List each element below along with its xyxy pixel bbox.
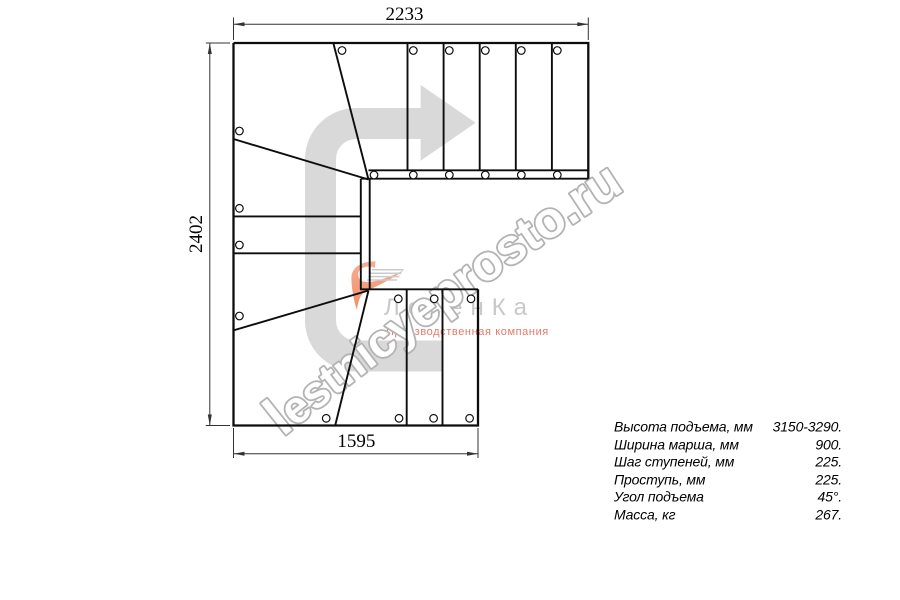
- svg-text:Шаг ступеней, мм: Шаг ступеней, мм: [614, 454, 735, 470]
- svg-text:Ширина марша, мм: Ширина марша, мм: [614, 436, 739, 452]
- svg-text:Высота подъема, мм: Высота подъема, мм: [614, 419, 753, 435]
- svg-text:45°.: 45°.: [818, 489, 842, 505]
- svg-text:1595: 1595: [337, 431, 375, 452]
- svg-text:Масса, кг: Масса, кг: [614, 506, 676, 522]
- svg-text:2402: 2402: [186, 215, 207, 253]
- svg-text:267.: 267.: [814, 506, 842, 522]
- svg-text:Проступь, мм: Проступь, мм: [614, 471, 706, 487]
- svg-text:Угол подъема: Угол подъема: [613, 489, 704, 505]
- svg-text:225.: 225.: [814, 471, 842, 487]
- svg-text:225.: 225.: [814, 454, 842, 470]
- svg-text:2233: 2233: [386, 4, 424, 25]
- svg-text:3150-3290.: 3150-3290.: [773, 419, 842, 435]
- svg-text:900.: 900.: [815, 436, 842, 452]
